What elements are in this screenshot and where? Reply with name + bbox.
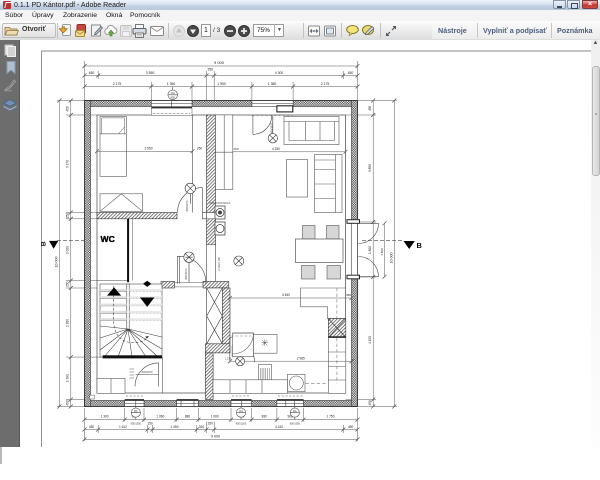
svg-text:450: 450 xyxy=(368,106,372,112)
svg-text:1 060: 1 060 xyxy=(211,414,219,418)
svg-text:O1: O1 xyxy=(293,409,297,413)
svg-text:2 175: 2 175 xyxy=(113,82,122,86)
svg-text:1 450: 1 450 xyxy=(171,425,179,429)
svg-text:450: 450 xyxy=(66,400,70,406)
svg-text:4 150: 4 150 xyxy=(368,336,372,344)
svg-text:1 350: 1 350 xyxy=(167,82,176,86)
svg-text:250: 250 xyxy=(208,422,214,426)
svg-text:900: 900 xyxy=(171,95,176,99)
svg-text:320: 320 xyxy=(199,425,205,429)
svg-text:2 965: 2 965 xyxy=(297,356,305,360)
svg-text:250: 250 xyxy=(233,147,238,151)
svg-text:PRACKA/SUSICKA: PRACKA/SUSICKA xyxy=(210,202,231,205)
svg-text:B: B xyxy=(41,241,48,246)
svg-text:250: 250 xyxy=(66,213,70,219)
svg-text:B: B xyxy=(417,241,422,250)
svg-text:250: 250 xyxy=(207,67,213,71)
svg-text:1 950: 1 950 xyxy=(217,82,226,86)
svg-text:2 175: 2 175 xyxy=(321,82,330,86)
svg-text:450: 450 xyxy=(66,106,70,112)
svg-text:4 240: 4 240 xyxy=(275,425,283,429)
svg-text:800/1970: 800/1970 xyxy=(184,268,188,279)
svg-text:845/1970: 845/1970 xyxy=(142,370,153,374)
svg-text:2 150/1 100: 2 150/1 100 xyxy=(217,257,221,271)
svg-text:1 800: 1 800 xyxy=(380,248,384,256)
svg-text:1 300: 1 300 xyxy=(101,414,109,418)
svg-text:3 170: 3 170 xyxy=(66,160,70,168)
svg-text:3 550: 3 550 xyxy=(145,146,153,150)
svg-text:450: 450 xyxy=(348,71,354,75)
svg-text:1 060: 1 060 xyxy=(156,414,164,418)
svg-text:9 000: 9 000 xyxy=(214,60,225,65)
svg-text:WC: WC xyxy=(101,234,115,244)
svg-text:2 020: 2 020 xyxy=(66,246,70,254)
svg-text:O1: O1 xyxy=(134,409,138,413)
svg-text:880: 880 xyxy=(185,414,191,418)
svg-text:2 260: 2 260 xyxy=(66,319,70,327)
svg-text:900/1300: 900/1300 xyxy=(131,422,142,425)
svg-text:800/1970: 800/1970 xyxy=(185,200,189,211)
svg-text:1 390: 1 390 xyxy=(66,374,70,382)
svg-text:250: 250 xyxy=(66,281,70,287)
svg-text:1 612: 1 612 xyxy=(119,425,127,429)
svg-text:10 000: 10 000 xyxy=(55,257,59,268)
svg-text:1 800: 1 800 xyxy=(368,246,372,254)
svg-text:O4: O4 xyxy=(171,91,175,95)
svg-text:3 460: 3 460 xyxy=(282,293,290,297)
svg-text:3 850: 3 850 xyxy=(368,164,372,172)
svg-text:10 000: 10 000 xyxy=(389,253,393,264)
svg-text:450: 450 xyxy=(89,425,95,429)
svg-text:4 330: 4 330 xyxy=(272,147,280,151)
svg-text:150: 150 xyxy=(147,422,153,426)
svg-text:3 550: 3 550 xyxy=(146,71,155,75)
svg-text:450: 450 xyxy=(346,293,351,297)
svg-text:4 300: 4 300 xyxy=(275,71,284,75)
svg-text:450: 450 xyxy=(89,71,95,75)
svg-text:450: 450 xyxy=(368,400,372,406)
svg-text:1 275: 1 275 xyxy=(225,357,232,361)
svg-text:900/1300: 900/1300 xyxy=(236,422,247,425)
svg-text:450: 450 xyxy=(348,425,354,429)
svg-text:900/1300: 900/1300 xyxy=(290,422,301,425)
svg-text:1 750: 1 750 xyxy=(327,414,335,418)
svg-text:1 380: 1 380 xyxy=(268,82,277,86)
svg-text:250: 250 xyxy=(197,146,203,150)
svg-text:O1: O1 xyxy=(239,409,243,413)
svg-text:830: 830 xyxy=(262,414,268,418)
svg-text:9 000: 9 000 xyxy=(211,435,220,439)
